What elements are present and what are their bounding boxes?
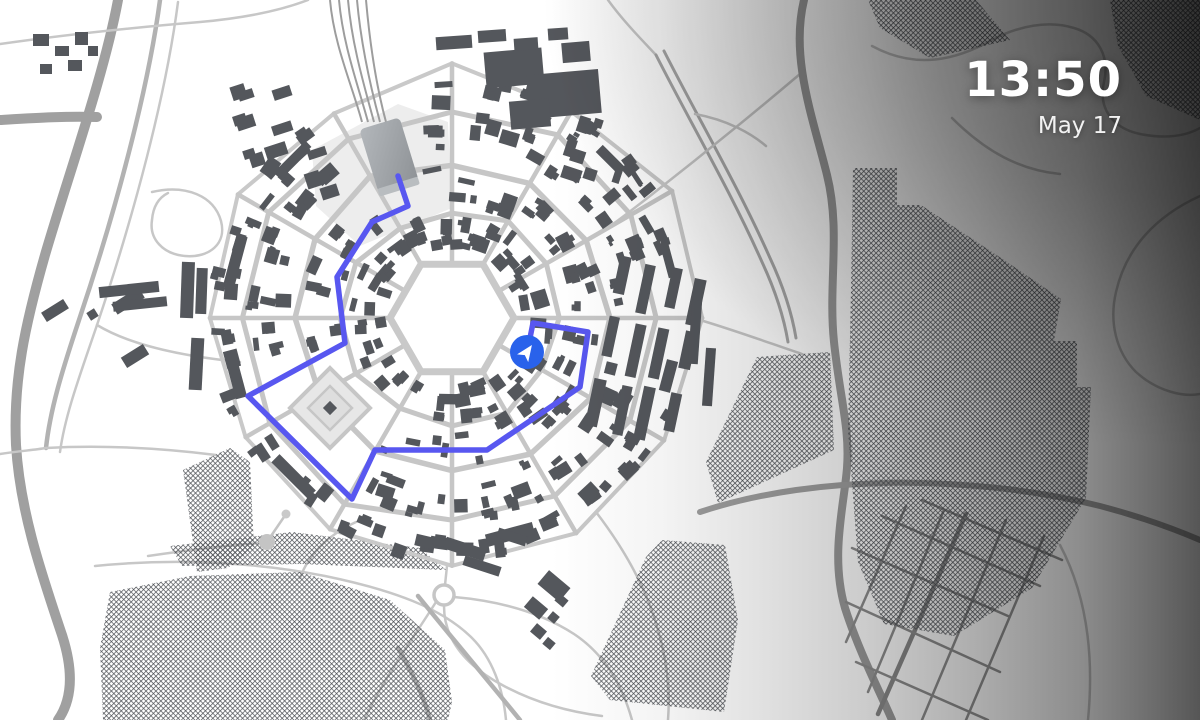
building (454, 499, 468, 513)
building (189, 338, 205, 391)
building (509, 98, 551, 129)
building (591, 334, 599, 346)
roundabout (434, 585, 454, 605)
building (438, 414, 445, 420)
building (489, 511, 498, 521)
building (436, 144, 445, 151)
building (572, 304, 576, 310)
clock-time: 13:50 (964, 56, 1122, 104)
building (449, 192, 466, 202)
building (88, 46, 98, 56)
building (561, 41, 591, 63)
rural-road (0, 117, 97, 120)
building (180, 262, 195, 318)
building (195, 268, 208, 314)
building (355, 325, 367, 335)
clock-date: May 17 (964, 113, 1122, 139)
building (432, 435, 442, 445)
building (364, 302, 375, 316)
building (33, 34, 49, 46)
pond (259, 534, 275, 550)
building (514, 37, 539, 51)
building (245, 305, 252, 310)
building (470, 195, 477, 204)
building (434, 81, 452, 88)
building (436, 396, 445, 411)
building (478, 29, 507, 43)
building (224, 283, 238, 300)
central-hexagon-plaza (390, 264, 514, 371)
building (436, 35, 473, 50)
position-marker (510, 335, 544, 369)
building (469, 125, 481, 141)
building (431, 95, 450, 110)
navigation-map-screen[interactable]: 13:50 May 17 (0, 0, 1200, 720)
pond-bulb (282, 510, 291, 519)
building (275, 294, 291, 308)
building (55, 46, 69, 56)
building (68, 60, 82, 71)
building (375, 317, 385, 325)
building (437, 494, 445, 504)
building (40, 64, 52, 74)
building (548, 27, 569, 40)
building (443, 226, 450, 235)
building (436, 129, 445, 136)
building (266, 326, 274, 334)
building (75, 32, 88, 45)
building (473, 407, 482, 414)
building (433, 242, 442, 249)
building (445, 234, 452, 241)
clock-widget: 13:50 May 17 (964, 56, 1122, 139)
